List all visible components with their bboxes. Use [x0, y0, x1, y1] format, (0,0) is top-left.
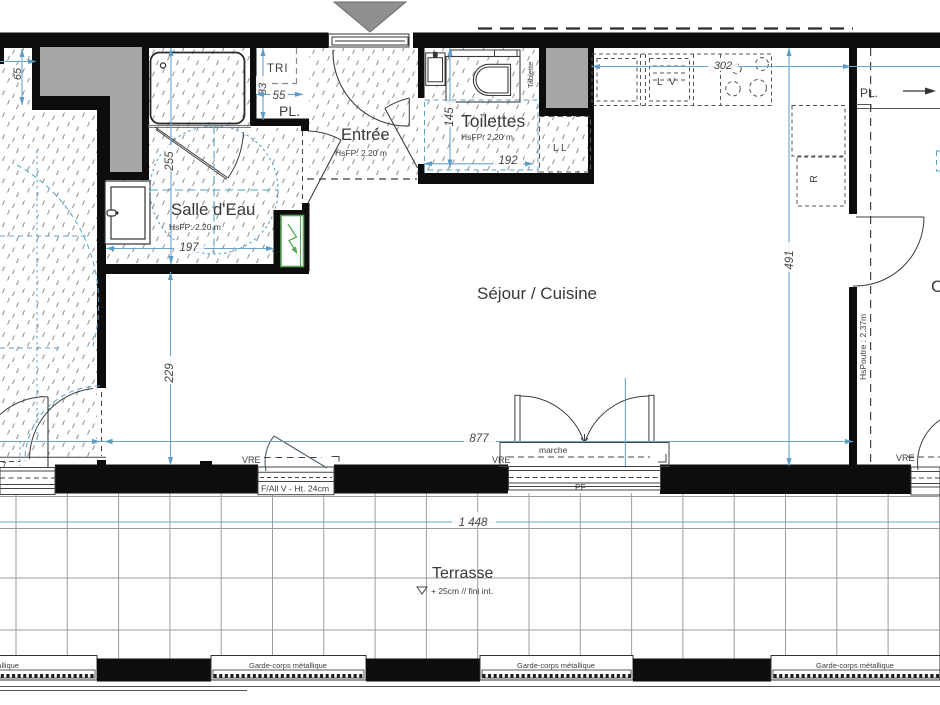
svg-text:+ 25cm // fini int.: + 25cm // fini int.	[431, 586, 493, 596]
svg-text:Salle d'Eau: Salle d'Eau	[171, 200, 255, 219]
svg-text:302: 302	[714, 60, 732, 72]
svg-text:55: 55	[273, 90, 286, 102]
svg-text:VRE: VRE	[896, 453, 915, 463]
svg-text:HsFP: 2.20 m: HsFP: 2.20 m	[335, 148, 387, 158]
svg-text:Terrasse: Terrasse	[432, 565, 493, 582]
svg-text:PL.: PL.	[860, 86, 878, 100]
svg-text:marche: marche	[539, 445, 568, 455]
svg-text:L V: L V	[657, 77, 678, 88]
svg-text:229: 229	[164, 363, 176, 384]
svg-text:VRE: VRE	[242, 455, 261, 465]
svg-text:197: 197	[179, 242, 199, 254]
svg-text:Garde-corps métallique: Garde-corps métallique	[0, 661, 19, 670]
svg-text:Tablette: Tablette	[526, 62, 535, 88]
svg-text:255: 255	[164, 151, 176, 172]
svg-text:L L: L L	[553, 143, 567, 154]
svg-text:Séjour / Cuisine: Séjour / Cuisine	[477, 284, 597, 303]
svg-text:Garde-corps métallique: Garde-corps métallique	[816, 661, 894, 670]
svg-text:877: 877	[469, 433, 489, 445]
svg-text:HsPoutre : 2.37m: HsPoutre : 2.37m	[858, 314, 868, 380]
svg-text:Garde-corps métallique: Garde-corps métallique	[517, 661, 595, 670]
svg-text:HsFP: 2.20 m: HsFP: 2.20 m	[169, 222, 221, 232]
svg-text:PF: PF	[575, 482, 586, 492]
svg-text:PL.: PL.	[279, 103, 300, 119]
svg-text:R: R	[808, 175, 820, 183]
svg-text:65: 65	[12, 67, 24, 80]
svg-text:Entrée: Entrée	[341, 126, 390, 144]
svg-text:C: C	[931, 277, 940, 296]
svg-text:HsFP: 2.20 m: HsFP: 2.20 m	[461, 132, 513, 142]
svg-text:Garde-corps métallique: Garde-corps métallique	[249, 661, 327, 670]
svg-text:192: 192	[498, 155, 518, 167]
svg-text:145: 145	[444, 107, 456, 127]
svg-text:TRI: TRI	[267, 63, 289, 75]
svg-text:VRE: VRE	[492, 455, 511, 465]
svg-text:F/All V - Ht. 24cm: F/All V - Ht. 24cm	[261, 484, 329, 494]
svg-text:83: 83	[257, 82, 269, 95]
svg-text:Toilettes: Toilettes	[461, 111, 525, 131]
svg-text:1 448: 1 448	[459, 517, 488, 529]
svg-text:7: 7	[2, 461, 7, 470]
svg-text:491: 491	[784, 250, 796, 269]
